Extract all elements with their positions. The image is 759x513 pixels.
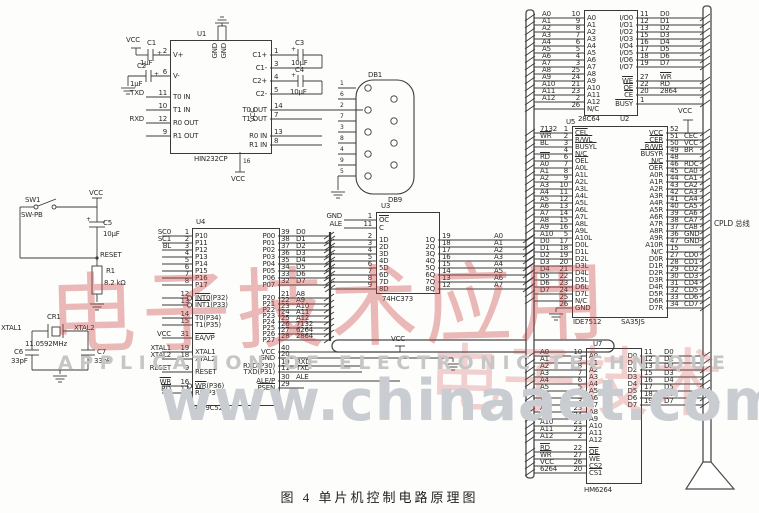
- net-label: ALE: [329, 220, 342, 228]
- db9-pin-number: 1: [340, 80, 344, 88]
- ic-part-number: SA35JS: [621, 318, 645, 326]
- annotation-sw-ref: SW1: [25, 196, 40, 204]
- pin-name: P07: [262, 281, 275, 289]
- pin-number: 4: [274, 73, 278, 81]
- pin-name: N/C: [587, 105, 599, 113]
- net-label: A12: [540, 432, 553, 440]
- annotation-vcc-u4: VCC: [391, 335, 405, 343]
- ic-ref: U4: [196, 218, 205, 226]
- figure-caption: 图 4 单片机控制电路原理图: [0, 487, 759, 506]
- net-label: 6264: [540, 465, 557, 473]
- pin-name: C1+: [252, 51, 267, 59]
- pin-number: 1: [640, 96, 644, 104]
- pin-name: BUSY: [615, 100, 633, 108]
- annotation-c6v: 33pF: [11, 357, 28, 365]
- pin-name: INT1(P33): [195, 301, 228, 309]
- db9-pin-number: 3: [340, 124, 344, 132]
- pin-name: V+: [173, 51, 183, 59]
- pin-number: 11: [363, 220, 372, 228]
- annotation-c5: C5: [103, 219, 112, 227]
- net-label: GND: [327, 212, 342, 220]
- pin-number: 1: [368, 212, 372, 220]
- pin-number: 13: [180, 297, 189, 305]
- pin-number: 5: [274, 86, 278, 94]
- pin-number: 26: [559, 300, 568, 308]
- net-label: BR: [684, 146, 693, 154]
- pin-number: 31: [180, 330, 189, 338]
- annotation-xtal1: XTAL1: [1, 324, 22, 332]
- overline-text: INT1: [195, 301, 210, 309]
- pin-name: D7: [628, 401, 637, 409]
- pin-number: 1: [274, 47, 278, 55]
- pin-name: A12: [589, 436, 602, 444]
- pin-name: RESET: [195, 368, 216, 376]
- annotation-plus3: +: [291, 46, 296, 54]
- ic-ref: U7: [593, 340, 602, 348]
- pin-number: 34: [670, 300, 679, 308]
- pin-number: 9: [185, 364, 189, 372]
- pin-name: T1 IN: [173, 106, 190, 114]
- ic-ref: U2: [620, 115, 629, 123]
- annotation-freq: 11.0592MHz: [25, 340, 67, 348]
- ic-part-number: HIN232CP: [194, 155, 227, 163]
- pin-name: R1 OUT: [173, 132, 198, 140]
- pin-number: 10: [158, 102, 167, 110]
- annotation-c2: C2: [137, 62, 146, 70]
- net-label: BL: [163, 242, 171, 250]
- overline-text: RD: [195, 389, 205, 397]
- net-label: RXD: [130, 115, 144, 123]
- pin-number: 7: [274, 111, 278, 119]
- pin-number: 19: [644, 397, 653, 405]
- annotation-c7v: 33pF: [94, 357, 111, 365]
- annotation-u1gnd2: GND: [220, 43, 228, 58]
- net-label: 2864: [296, 332, 313, 340]
- pin-number: 9: [163, 128, 167, 136]
- net-label: XTAL2: [150, 351, 171, 359]
- pin-number: 12: [442, 281, 451, 289]
- pin-name: R1 IN: [249, 141, 267, 149]
- pin-number: 19: [640, 59, 649, 67]
- pin-name: C2-: [256, 90, 267, 98]
- net-label: ALE: [296, 373, 309, 381]
- pin-number: 14: [274, 102, 283, 110]
- pin-number: 20: [573, 465, 582, 473]
- annotation-plus4: +: [291, 72, 296, 80]
- annotation-c4: C4: [295, 66, 304, 74]
- pin-number: 28: [281, 332, 290, 340]
- pin-number: 20: [281, 350, 290, 358]
- annotation-vcc-rst: VCC: [89, 189, 103, 197]
- pin-name: GND: [260, 354, 275, 362]
- pin-name: C: [379, 224, 384, 232]
- pin-number: 26: [571, 101, 580, 109]
- pin-number: 2: [163, 47, 167, 55]
- net-label: A7: [494, 281, 503, 289]
- annotation-c5v: 10μF: [103, 230, 120, 238]
- pin-number: 6: [163, 68, 167, 76]
- db9-pin-number: 9: [340, 157, 344, 165]
- annotation-r1: R1: [106, 267, 115, 275]
- overline-text: EA/VP: [195, 334, 215, 342]
- pin-name: C2+: [252, 77, 267, 85]
- annotation-vcc-c1: VCC: [126, 36, 140, 44]
- db9-pin-number: 7: [340, 113, 344, 121]
- pin-name: XTAL2: [195, 355, 216, 363]
- pin-name: EA/VP: [195, 334, 215, 342]
- pin-number: 29: [281, 380, 290, 388]
- annotation-c2v: 1μF: [130, 80, 142, 88]
- net-label: A12: [542, 94, 555, 102]
- annotation-sw-type: SW-PB: [21, 211, 43, 219]
- pin-name: 8Q: [425, 285, 435, 293]
- annotation-plus5: +: [86, 216, 91, 224]
- ic-part-number: 28C64: [578, 115, 600, 123]
- pin-number: 17: [180, 385, 189, 393]
- annotation-reset: RESET: [100, 251, 121, 259]
- pin-name: D7R: [649, 304, 663, 312]
- pin-number: 9: [368, 281, 372, 289]
- net-label: BL: [540, 139, 548, 147]
- connector-ref: DB1: [368, 71, 382, 79]
- net-label: TXD: [130, 89, 144, 97]
- pin-name: T1(P35): [195, 321, 221, 329]
- pin-name: V-: [173, 72, 180, 80]
- pin-number: 8: [274, 137, 278, 145]
- net-label: RD: [161, 385, 171, 393]
- db9-pin-number: 6: [340, 91, 344, 99]
- overline-text: BUSY: [615, 100, 633, 108]
- pin-number: 20: [640, 87, 649, 95]
- pin-number: 32: [281, 277, 290, 285]
- db9-pin-number: 8: [340, 135, 344, 143]
- pin-name: R0 IN: [249, 132, 267, 140]
- annotation-c1: C1: [147, 39, 156, 47]
- annotation-u1pin16: 16: [243, 158, 250, 166]
- net-label: D7: [660, 59, 669, 67]
- pin-name: R0 OUT: [173, 119, 198, 127]
- annotation-u1vccb: VCC: [231, 175, 245, 183]
- annotation-r1v: 8.2 kΩ: [104, 279, 126, 287]
- annotation-c3: C3: [295, 39, 304, 47]
- pin-number: 3: [274, 60, 278, 68]
- annotation-vcc-u5: VCC: [678, 107, 692, 115]
- overline-text: PSEN: [257, 384, 275, 392]
- pin-number: 2: [578, 432, 582, 440]
- net-label: GND: [684, 237, 699, 245]
- pin-name: RD(P37): [195, 389, 222, 397]
- pin-number: 11: [281, 364, 290, 372]
- annotation-c7: C7: [97, 348, 106, 356]
- net-label: TXD: [296, 364, 310, 372]
- annotation-u1vccin: VCC: [249, 108, 257, 122]
- net-label: D7: [296, 277, 305, 285]
- db9-pin-number: 4: [340, 146, 344, 154]
- schematic-figure: 电子技术应用 电子技术 APPLICATION OF ELECTRONIC TE…: [0, 0, 759, 513]
- pin-name: PSEN: [257, 384, 275, 392]
- net-label: RESET: [150, 364, 171, 372]
- pin-number: 15: [180, 317, 189, 325]
- net-label: D7: [664, 397, 673, 405]
- pin-name: CS1: [589, 469, 602, 477]
- overline-text: OC: [379, 216, 389, 224]
- net-label: VCC: [157, 330, 171, 338]
- db9-pin-number: 2: [340, 102, 344, 110]
- pin-name: TXD(P31): [244, 368, 275, 376]
- annotation-u1gnd1: GND: [211, 43, 219, 58]
- pin-name: GND: [575, 304, 590, 312]
- ic-part-number: IDE7512: [573, 318, 601, 326]
- net-label: 2864: [660, 87, 677, 95]
- overline-text: CE: [624, 91, 633, 99]
- annotation-xtal2: XTAL2: [74, 324, 95, 332]
- ic-part-number: 74HC373: [382, 295, 413, 303]
- ic-part-number: AT89C52: [193, 404, 223, 412]
- net-label: CD7: [684, 300, 698, 308]
- pin-name: P27: [262, 336, 275, 344]
- pin-name: CE: [624, 91, 633, 99]
- pin-name: OC: [379, 216, 389, 224]
- pin-number: 11: [158, 89, 167, 97]
- pin-number: 18: [180, 351, 189, 359]
- db9-pin-number: 5: [340, 168, 344, 176]
- annotation-c6: C6: [14, 348, 23, 356]
- annotation-c4v: 10μF: [290, 88, 307, 96]
- connector-type: DB9: [388, 196, 402, 204]
- net-label: D7: [540, 286, 549, 294]
- overline-text: RD: [161, 385, 171, 393]
- pin-name: I/O7: [619, 63, 633, 71]
- overline-text: CS1: [589, 469, 602, 477]
- annotation-plus2: +: [154, 71, 159, 79]
- annotation-cpld: CPLD 总线: [714, 220, 750, 228]
- pin-number: 12: [158, 115, 167, 123]
- annotation-plus1: +: [157, 50, 162, 58]
- annotation-cr1: CR1: [47, 313, 61, 321]
- pin-name: 8D: [379, 285, 388, 293]
- pin-name: P17: [195, 281, 208, 289]
- pin-name: C1-: [256, 64, 267, 72]
- pin-name: T0 IN: [173, 93, 190, 101]
- pin-number: 8: [185, 277, 189, 285]
- pin-number: 13: [274, 128, 283, 136]
- ic-ref: U1: [197, 30, 206, 38]
